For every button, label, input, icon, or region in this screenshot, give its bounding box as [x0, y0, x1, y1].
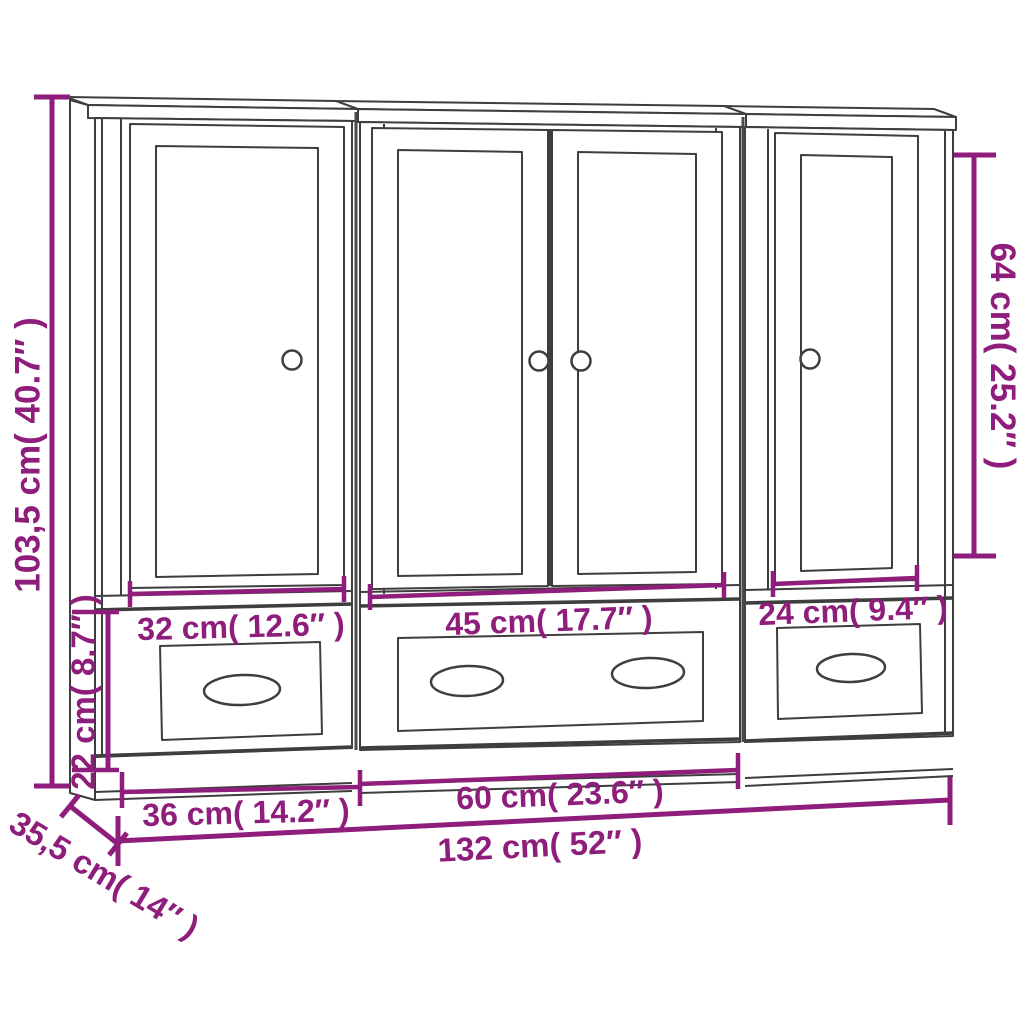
dim-label-middle-unit-width: 60 cm( 23.6″ ) [456, 772, 665, 816]
middle-cabinet [334, 101, 746, 793]
dim-label-middle-doors-width: 45 cm( 17.7″ ) [445, 599, 654, 642]
diagram-svg: 103,5 cm( 40.7″ ) 22 cm( 8.7″ ) 64 cm( 2… [0, 0, 1024, 1024]
dim-left-unit-width: 36 cm( 14.2″ ) [122, 770, 360, 833]
right-cabinet [720, 106, 956, 786]
dim-total-height: 103,5 cm( 40.7″ ) [8, 97, 70, 786]
dim-label-total-width: 132 cm( 52″ ) [437, 822, 643, 869]
dim-label-right-door-width: 24 cm( 9.4″ ) [757, 589, 948, 632]
middle-door-left-panel [398, 150, 522, 576]
dim-label-right-door-height: 64 cm( 25.2″ ) [983, 243, 1022, 470]
middle-right-door-knob [572, 352, 591, 371]
left-door-knob [283, 351, 302, 370]
dim-label-drawer-section-height: 22 cm( 8.7″ ) [65, 594, 102, 790]
dim-right-door-height: 64 cm( 25.2″ ) [954, 155, 1022, 556]
dim-label-total-height: 103,5 cm( 40.7″ ) [8, 317, 47, 593]
middle-door-right-panel [578, 152, 696, 574]
product-dimension-diagram: 103,5 cm( 40.7″ ) 22 cm( 8.7″ ) 64 cm( 2… [0, 0, 1024, 1024]
dim-label-left-door-width: 32 cm( 12.6″ ) [137, 606, 345, 647]
right-door-knob [801, 350, 820, 369]
dim-label-left-unit-width: 36 cm( 14.2″ ) [142, 792, 350, 833]
middle-left-door-knob [530, 352, 549, 371]
dim-middle-unit-width: 60 cm( 23.6″ ) [360, 753, 738, 816]
